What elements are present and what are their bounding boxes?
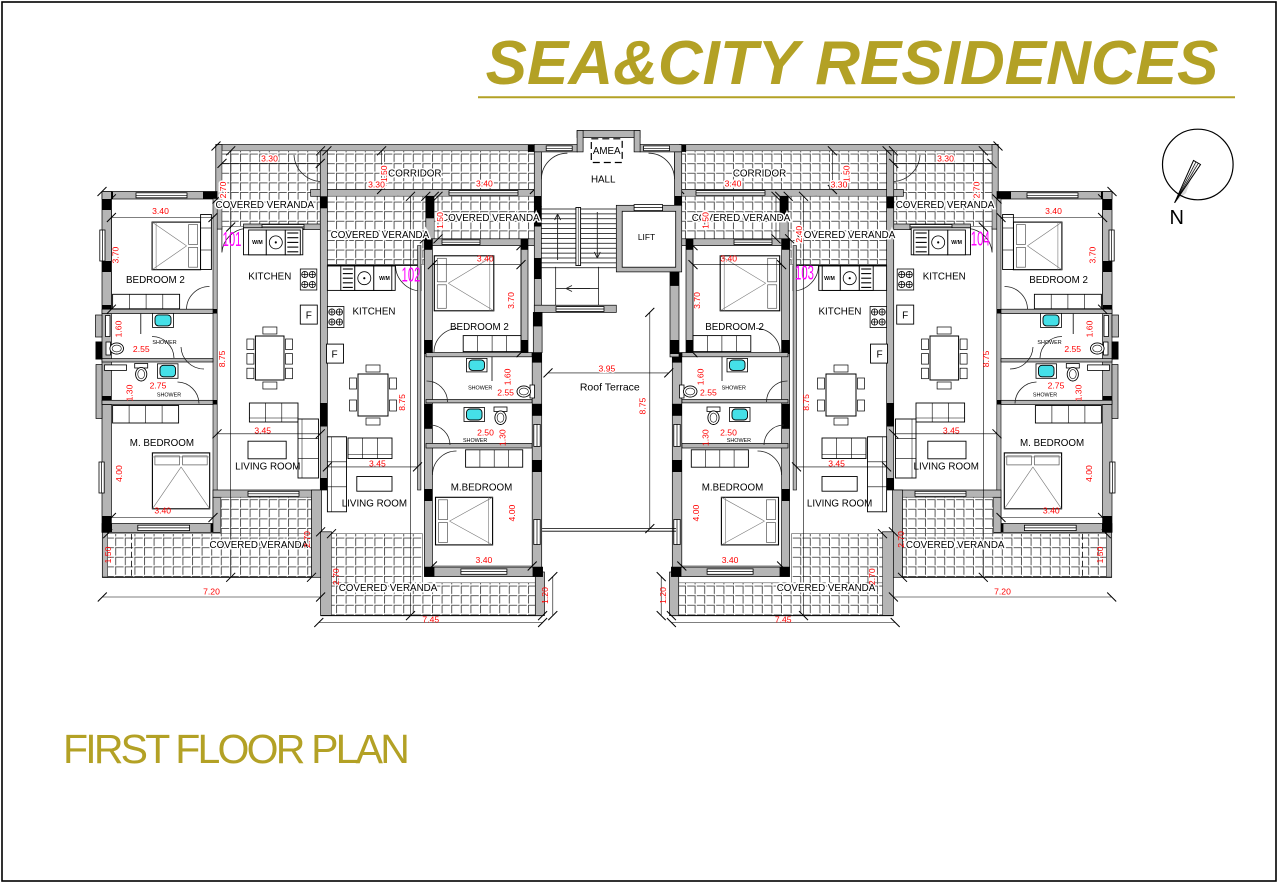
svg-text:104: 104 xyxy=(971,228,990,251)
svg-text:3.45: 3.45 xyxy=(828,459,845,469)
svg-text:AMEA: AMEA xyxy=(593,146,621,157)
svg-text:3.40: 3.40 xyxy=(720,253,737,263)
svg-text:1.60: 1.60 xyxy=(1085,320,1095,337)
svg-text:2.70: 2.70 xyxy=(972,181,982,198)
svg-text:COVERED VERANDA: COVERED VERANDA xyxy=(441,213,540,224)
svg-text:8.75: 8.75 xyxy=(217,350,227,367)
svg-text:1.50: 1.50 xyxy=(701,212,711,229)
svg-text:1.60: 1.60 xyxy=(695,368,705,385)
svg-text:2.75: 2.75 xyxy=(150,381,167,391)
svg-text:KITCHEN: KITCHEN xyxy=(818,306,861,317)
svg-text:3.45: 3.45 xyxy=(254,426,271,436)
svg-text:W/M: W/M xyxy=(824,276,835,282)
svg-text:SHOWER: SHOWER xyxy=(727,438,751,444)
svg-text:SHOWER: SHOWER xyxy=(157,393,181,399)
svg-text:2.70: 2.70 xyxy=(218,181,228,198)
svg-text:1.50: 1.50 xyxy=(103,546,113,563)
svg-text:COVERED VERANDA: COVERED VERANDA xyxy=(216,200,315,211)
svg-text:SEA&CITY RESIDENCES: SEA&CITY RESIDENCES xyxy=(486,29,1219,98)
svg-text:3.95: 3.95 xyxy=(599,364,616,374)
svg-text:BEDROOM 2: BEDROOM 2 xyxy=(1029,275,1088,286)
svg-text:COVERED VERANDA: COVERED VERANDA xyxy=(797,230,896,241)
svg-text:SHOWER: SHOWER xyxy=(152,340,176,346)
svg-text:3.70: 3.70 xyxy=(692,292,702,309)
svg-text:3.70: 3.70 xyxy=(1088,247,1098,264)
svg-text:4.00: 4.00 xyxy=(691,505,701,522)
svg-text:103: 103 xyxy=(795,262,814,285)
svg-text:3.30: 3.30 xyxy=(261,154,278,164)
svg-text:LIVING ROOM: LIVING ROOM xyxy=(807,498,872,509)
svg-text:3.45: 3.45 xyxy=(369,459,386,469)
svg-text:3.40: 3.40 xyxy=(1043,505,1060,515)
svg-text:KITCHEN: KITCHEN xyxy=(248,271,291,282)
svg-text:2.70: 2.70 xyxy=(302,531,312,548)
svg-text:COVERED VERANDA: COVERED VERANDA xyxy=(777,583,876,594)
svg-text:1.30: 1.30 xyxy=(701,429,711,446)
svg-text:2.55: 2.55 xyxy=(700,388,717,398)
svg-text:7.20: 7.20 xyxy=(994,587,1011,597)
svg-text:7.45: 7.45 xyxy=(775,615,792,625)
svg-text:F: F xyxy=(331,350,337,361)
svg-text:COVERED VERANDA: COVERED VERANDA xyxy=(906,540,1005,551)
svg-text:BEDROOM 2: BEDROOM 2 xyxy=(126,275,185,286)
svg-text:M. BEDROOM: M. BEDROOM xyxy=(1020,438,1084,449)
svg-text:KITCHEN: KITCHEN xyxy=(923,271,966,282)
svg-text:3.40: 3.40 xyxy=(477,253,494,263)
svg-text:102: 102 xyxy=(402,264,421,287)
svg-text:1.30: 1.30 xyxy=(497,429,507,446)
svg-text:3.40: 3.40 xyxy=(1045,206,1062,216)
svg-text:2.55: 2.55 xyxy=(497,388,514,398)
svg-text:101: 101 xyxy=(223,228,242,251)
svg-text:LIFT: LIFT xyxy=(638,232,655,242)
svg-text:2.70: 2.70 xyxy=(896,531,906,548)
svg-text:F: F xyxy=(306,310,312,321)
svg-text:W/M: W/M xyxy=(379,276,390,282)
svg-text:SHOWER: SHOWER xyxy=(1037,340,1061,346)
svg-text:8.75: 8.75 xyxy=(981,350,991,367)
svg-text:3.30: 3.30 xyxy=(368,179,385,189)
svg-text:3.30: 3.30 xyxy=(937,154,954,164)
svg-text:COVERED VERANDA: COVERED VERANDA xyxy=(896,200,995,211)
svg-text:7.45: 7.45 xyxy=(422,615,439,625)
svg-text:8.75: 8.75 xyxy=(638,398,648,415)
svg-text:F: F xyxy=(876,350,882,361)
svg-text:F: F xyxy=(902,310,908,321)
svg-text:8.75: 8.75 xyxy=(397,394,407,411)
svg-text:BEDROOM 2: BEDROOM 2 xyxy=(705,322,764,333)
svg-text:LIVING ROOM: LIVING ROOM xyxy=(235,462,300,473)
svg-text:2.50: 2.50 xyxy=(720,427,737,437)
svg-text:W/M: W/M xyxy=(951,240,962,246)
svg-text:LIVING ROOM: LIVING ROOM xyxy=(342,498,407,509)
svg-text:4.00: 4.00 xyxy=(114,465,124,482)
svg-text:M. BEDROOM: M. BEDROOM xyxy=(130,438,194,449)
svg-text:KITCHEN: KITCHEN xyxy=(352,306,395,317)
svg-text:CORRIDOR: CORRIDOR xyxy=(388,169,441,180)
svg-text:HALL: HALL xyxy=(591,175,616,186)
svg-text:3.30: 3.30 xyxy=(831,179,848,189)
svg-text:3.40: 3.40 xyxy=(476,555,493,565)
svg-text:3.40: 3.40 xyxy=(722,555,739,565)
svg-text:SHOWER: SHOWER xyxy=(722,386,746,392)
svg-text:1.60: 1.60 xyxy=(503,368,513,385)
svg-text:SHOWER: SHOWER xyxy=(468,386,492,392)
svg-text:1.60: 1.60 xyxy=(114,320,124,337)
svg-text:SHOWER: SHOWER xyxy=(463,438,487,444)
svg-text:2.70: 2.70 xyxy=(331,568,341,585)
svg-text:1.20: 1.20 xyxy=(540,587,550,604)
svg-text:7.20: 7.20 xyxy=(203,587,220,597)
svg-text:M.BEDROOM: M.BEDROOM xyxy=(451,483,513,494)
svg-text:LIVING ROOM: LIVING ROOM xyxy=(914,462,979,473)
svg-text:COVERED VERANDA: COVERED VERANDA xyxy=(331,230,430,241)
svg-text:COVERED VERANDA: COVERED VERANDA xyxy=(339,583,438,594)
svg-text:2.75: 2.75 xyxy=(1048,381,1065,391)
svg-text:4.00: 4.00 xyxy=(1084,465,1094,482)
svg-text:8.75: 8.75 xyxy=(801,394,811,411)
svg-text:1.50: 1.50 xyxy=(1095,546,1105,563)
svg-text:2.55: 2.55 xyxy=(133,344,150,354)
svg-text:SHOWER: SHOWER xyxy=(1033,393,1057,399)
svg-text:3.40: 3.40 xyxy=(725,179,742,189)
svg-text:3.70: 3.70 xyxy=(506,292,516,309)
svg-text:3.40: 3.40 xyxy=(154,505,171,515)
svg-text:4.00: 4.00 xyxy=(507,505,517,522)
svg-text:N: N xyxy=(1170,207,1184,229)
svg-text:3.45: 3.45 xyxy=(943,426,960,436)
svg-text:Roof Terrace: Roof Terrace xyxy=(580,381,640,393)
svg-text:3.40: 3.40 xyxy=(152,206,169,216)
svg-text:3.70: 3.70 xyxy=(111,247,121,264)
svg-text:3.40: 3.40 xyxy=(476,179,493,189)
svg-text:1.50: 1.50 xyxy=(435,212,445,229)
svg-text:BEDROOM 2: BEDROOM 2 xyxy=(450,322,509,333)
svg-text:M.BEDROOM: M.BEDROOM xyxy=(702,483,764,494)
svg-text:2.50: 2.50 xyxy=(477,427,494,437)
svg-text:2.55: 2.55 xyxy=(1064,344,1081,354)
svg-text:COVERED VERANDA: COVERED VERANDA xyxy=(210,540,309,551)
svg-text:1.20: 1.20 xyxy=(658,587,668,604)
svg-text:FIRST FLOOR PLAN: FIRST FLOOR PLAN xyxy=(63,726,407,772)
svg-text:2.40: 2.40 xyxy=(794,226,804,243)
svg-text:W/M: W/M xyxy=(252,240,263,246)
svg-text:1.30: 1.30 xyxy=(125,384,135,401)
svg-text:2.70: 2.70 xyxy=(867,568,877,585)
svg-text:1.30: 1.30 xyxy=(1074,384,1084,401)
